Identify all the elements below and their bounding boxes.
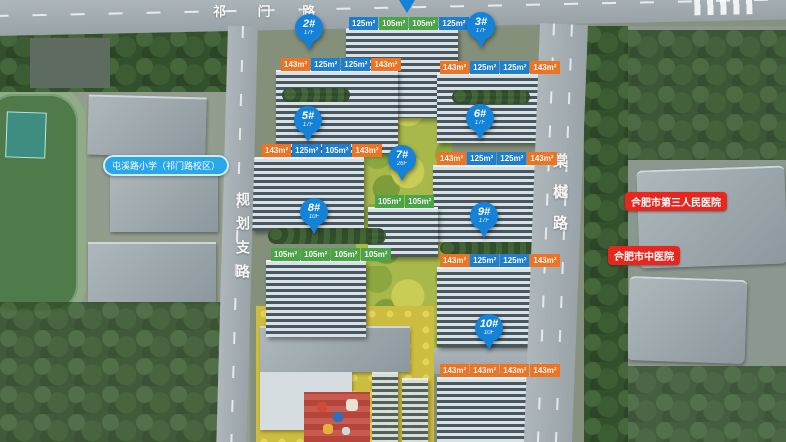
pin-tail xyxy=(396,170,408,181)
pin-bubble: 8# 10F xyxy=(300,198,328,226)
area-tag: 143m² xyxy=(440,364,469,377)
pin-tail xyxy=(308,223,320,234)
area-tag: 143m² xyxy=(281,58,310,71)
tree-band xyxy=(584,26,628,442)
pin-number: 10# xyxy=(480,319,498,330)
pin-bubble: 5# 17F xyxy=(294,106,322,134)
area-tag: 125m² xyxy=(497,152,526,165)
building-pin-8: 8# 10F xyxy=(299,198,329,234)
dark-roof-building xyxy=(30,38,110,88)
pin-bubble: 10# 10F xyxy=(475,314,503,342)
area-tag: 105m² xyxy=(331,248,360,261)
area-tag: 143m² xyxy=(440,61,469,74)
pin-tail xyxy=(483,339,495,350)
pin-bubble: 7# 26F xyxy=(388,145,416,173)
area-tag: 143m² xyxy=(262,144,291,157)
pin-number: 5# xyxy=(302,111,314,122)
area-tag: 125m² xyxy=(341,58,370,71)
tree-band xyxy=(624,30,786,160)
crosswalk xyxy=(694,0,753,15)
area-tag: 125m² xyxy=(500,254,529,267)
hospital-label-1: 合肥市第三人民医院 xyxy=(625,192,727,211)
area-tags-building-3: 143m² 125m² 125m² 143m² xyxy=(440,61,560,74)
area-tags-building-6: 143m² 125m² 125m² 143m² xyxy=(437,152,557,165)
hedge xyxy=(452,90,530,104)
building-pin-7: 7# 26F xyxy=(387,145,417,181)
pin-tail xyxy=(302,131,314,142)
sports-court xyxy=(5,111,47,158)
pin-number: 3# xyxy=(475,17,487,28)
area-tags-building-9: 143m² 125m² 125m² 143m² xyxy=(440,254,560,267)
area-tag: 125m² xyxy=(439,17,468,30)
pin-number: 7# xyxy=(396,150,408,161)
area-tag: 143m² xyxy=(470,364,499,377)
area-tags-building-7: 105m² 105m² xyxy=(375,195,434,208)
pin-bubble: 3# 17F xyxy=(467,12,495,40)
pin-bubble: 9# 17F xyxy=(470,202,498,230)
area-tag: 105m² xyxy=(405,195,434,208)
pin-floors: 17F xyxy=(479,218,489,225)
residential-tower xyxy=(372,372,398,442)
hedge xyxy=(282,88,350,102)
area-tag: 105m² xyxy=(375,195,404,208)
area-tag: 125m² xyxy=(467,152,496,165)
area-tag: 143m² xyxy=(440,254,469,267)
school-building xyxy=(88,242,216,302)
pin-tail xyxy=(474,129,486,140)
pin-floors: 10F xyxy=(484,330,494,337)
area-tags-building-10: 143m² 143m² 143m² 143m² xyxy=(440,364,560,377)
area-tag: 105m² xyxy=(379,17,408,30)
pin-floors: 17F xyxy=(476,28,486,35)
road-lane-dashes xyxy=(0,0,786,17)
area-tag: 143m² xyxy=(371,58,400,71)
area-tag: 125m² xyxy=(470,254,499,267)
area-tag: 105m² xyxy=(301,248,330,261)
school-building xyxy=(87,94,207,157)
area-tag: 125m² xyxy=(500,61,529,74)
building-pin-3: 3# 17F xyxy=(466,12,496,48)
hedge xyxy=(440,242,536,254)
hospital-building xyxy=(627,276,748,364)
pin-number: 6# xyxy=(474,109,486,120)
pin-tail xyxy=(475,37,487,48)
building-pin-2: 2# 17F xyxy=(294,14,324,50)
area-tag: 105m² xyxy=(271,248,300,261)
road-label-right: 棠樾路 xyxy=(549,153,570,246)
pin-tail xyxy=(303,39,315,50)
area-tag: 143m² xyxy=(530,254,559,267)
pin-floors: 17F xyxy=(475,120,485,127)
pin-number: 8# xyxy=(308,203,320,214)
area-tag: 143m² xyxy=(530,61,559,74)
pin-floors: 10F xyxy=(309,214,319,221)
pin-number: 2# xyxy=(303,19,315,30)
building-pin-9: 9# 17F xyxy=(469,202,499,238)
school-building xyxy=(110,168,218,232)
area-tags-building-2: 143m² 125m² 125m² 143m² xyxy=(281,58,401,71)
pin-floors: 17F xyxy=(303,122,313,129)
area-tag: 143m² xyxy=(500,364,529,377)
building-pin-6: 6# 17F xyxy=(465,104,495,140)
area-tag: 125m² xyxy=(470,61,499,74)
area-tag: 125m² xyxy=(349,17,378,30)
residential-tower xyxy=(402,378,428,442)
area-tags-building-5: 143m² 125m² 105m² 143m² xyxy=(262,144,382,157)
pin-bubble: 2# 17F xyxy=(295,14,323,42)
area-tag: 125m² xyxy=(311,58,340,71)
aerial-site-plan: 祁 门 路 规划支路 棠樾路 125m² 105m² xyxy=(0,0,786,442)
area-tags-top-building: 125m² 105m² 105m² 125m² xyxy=(349,17,469,30)
area-tag: 143m² xyxy=(527,152,556,165)
area-tag: 143m² xyxy=(352,144,381,157)
building-pin-5: 5# 17F xyxy=(293,106,323,142)
pin-floors: 26F xyxy=(397,161,407,168)
pin-floors: 17F xyxy=(304,30,314,37)
area-tag: 125m² xyxy=(292,144,321,157)
road-label-left: 规划支路 xyxy=(233,192,253,288)
pin-bubble: 6# 17F xyxy=(466,104,494,132)
hospital-label-2: 合肥市中医院 xyxy=(608,246,680,265)
area-tag: 143m² xyxy=(437,152,466,165)
area-tag: 105m² xyxy=(361,248,390,261)
building-pin-10: 10# 10F xyxy=(474,314,504,350)
tree-band xyxy=(0,302,240,442)
tree-band xyxy=(622,366,786,442)
building-pin-tail-top xyxy=(399,0,415,13)
area-tag: 105m² xyxy=(322,144,351,157)
kindergarten-playdeck xyxy=(304,392,370,442)
area-tag: 105m² xyxy=(409,17,438,30)
area-tags-building-8: 105m² 105m² 105m² 105m² xyxy=(271,248,391,261)
area-tag: 143m² xyxy=(530,364,559,377)
pin-number: 9# xyxy=(478,207,490,218)
residential-tower xyxy=(266,260,366,337)
pin-tail xyxy=(478,227,490,238)
playground-equipment xyxy=(315,398,317,400)
school-label: 屯溪路小学（祁门路校区） xyxy=(103,155,229,176)
